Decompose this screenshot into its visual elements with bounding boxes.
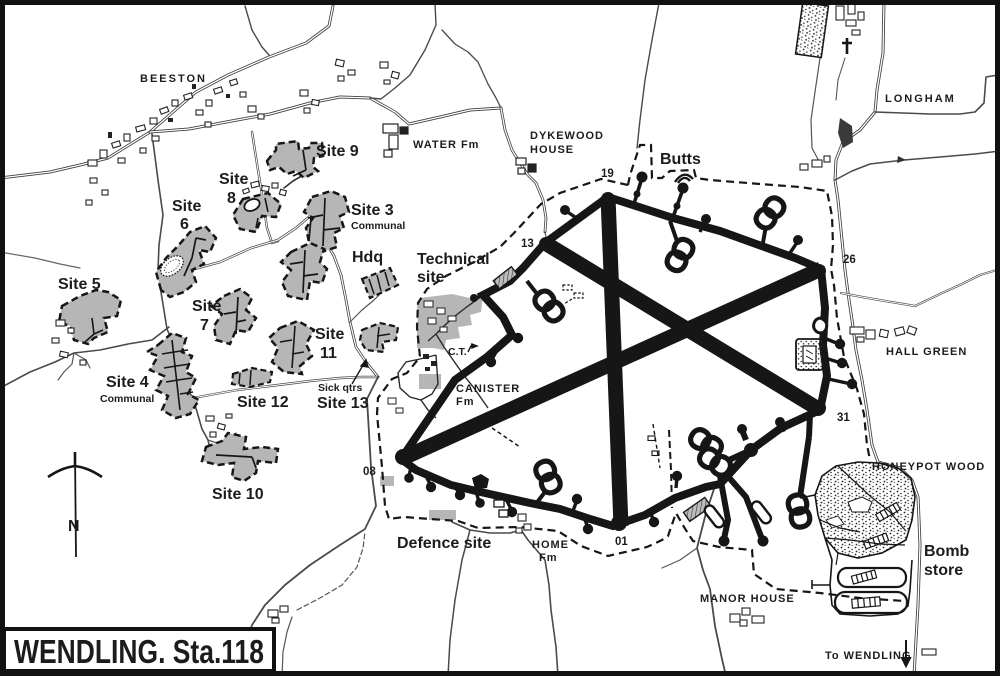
svg-text:site: site	[417, 269, 445, 286]
svg-text:Site: Site	[192, 298, 221, 315]
svg-text:LONGHAM: LONGHAM	[885, 93, 956, 105]
svg-text:BEESTON: BEESTON	[140, 73, 207, 85]
svg-text:MANOR HOUSE: MANOR HOUSE	[700, 593, 795, 605]
svg-text:Site: Site	[219, 171, 248, 188]
svg-text:HALL GREEN: HALL GREEN	[886, 346, 967, 358]
svg-text:Hdq: Hdq	[352, 249, 383, 266]
svg-text:Site: Site	[172, 198, 201, 215]
svg-text:C.T.: C.T.	[448, 346, 467, 358]
svg-text:N: N	[68, 518, 80, 535]
svg-text:8: 8	[227, 190, 236, 207]
svg-text:DYKEWOOD: DYKEWOOD	[530, 130, 604, 142]
svg-text:Fm: Fm	[456, 396, 475, 408]
svg-text:7: 7	[200, 317, 209, 334]
svg-text:HOUSE: HOUSE	[530, 144, 574, 156]
svg-text:31: 31	[837, 412, 850, 424]
svg-text:08: 08	[363, 466, 376, 478]
svg-text:WATER Fm: WATER Fm	[413, 139, 479, 151]
svg-text:11: 11	[320, 345, 337, 362]
svg-text:Sick qtrs: Sick qtrs	[318, 382, 363, 394]
svg-text:Site 13: Site 13	[317, 395, 369, 412]
svg-text:26: 26	[843, 254, 856, 266]
svg-text:Site 9: Site 9	[316, 143, 359, 160]
svg-text:Site 5: Site 5	[58, 276, 101, 293]
svg-text:HONEYPOT WOOD: HONEYPOT WOOD	[872, 461, 985, 473]
svg-text:Defence site: Defence site	[397, 535, 491, 552]
svg-text:Fm: Fm	[539, 552, 558, 564]
svg-text:Butts: Butts	[660, 151, 701, 168]
svg-text:Site 4: Site 4	[106, 374, 149, 391]
svg-text:Site 3: Site 3	[351, 202, 394, 219]
svg-text:Communal: Communal	[351, 220, 405, 232]
svg-text:Site: Site	[315, 326, 344, 343]
svg-text:19: 19	[601, 168, 614, 180]
svg-text:HOME: HOME	[532, 539, 569, 551]
svg-text:6: 6	[180, 216, 189, 233]
svg-text:01: 01	[615, 536, 628, 548]
svg-text:Technical: Technical	[417, 251, 490, 268]
svg-text:Site 10: Site 10	[212, 486, 264, 503]
svg-text:Bomb: Bomb	[924, 543, 970, 560]
svg-text:13: 13	[521, 238, 534, 250]
svg-text:CANISTER: CANISTER	[456, 383, 520, 395]
svg-text:To WENDLING: To WENDLING	[825, 650, 912, 662]
svg-text:Site 12: Site 12	[237, 394, 289, 411]
svg-text:Communal: Communal	[100, 393, 154, 405]
svg-text:store: store	[924, 562, 963, 579]
svg-text:WENDLING. Sta.118: WENDLING. Sta.118	[14, 633, 264, 670]
